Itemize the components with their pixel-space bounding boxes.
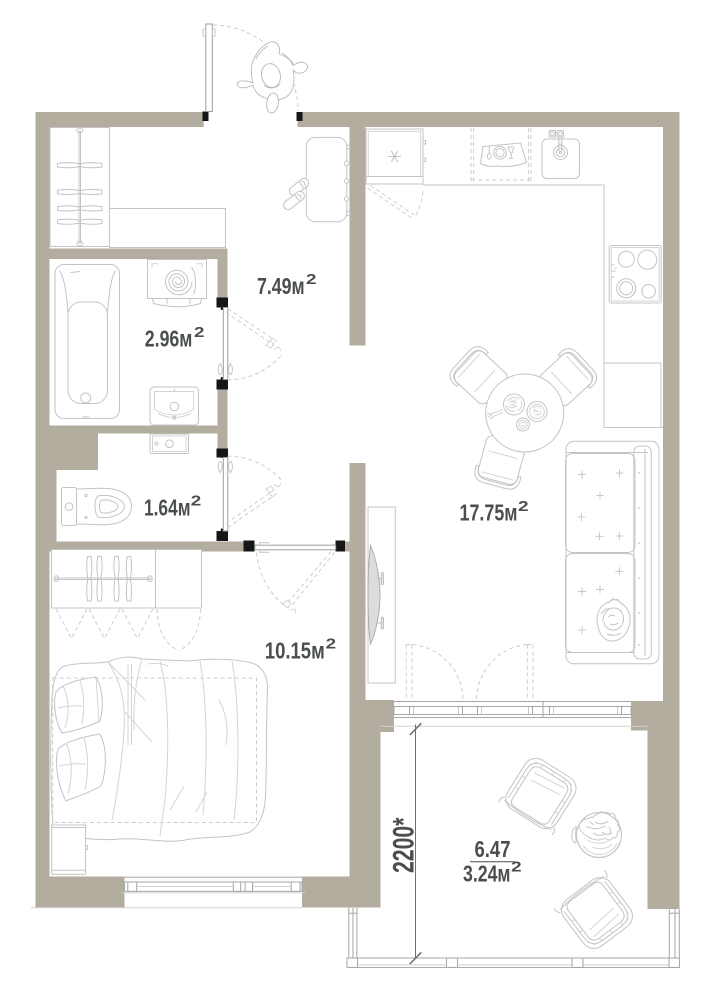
- svg-text:17.75м: 17.75м: [460, 500, 518, 526]
- svg-text:2.96м: 2.96м: [145, 326, 193, 352]
- svg-text:2: 2: [194, 325, 205, 341]
- svg-text:2: 2: [511, 860, 522, 876]
- svg-text:2: 2: [518, 499, 529, 515]
- svg-text:2200*: 2200*: [388, 817, 421, 873]
- svg-text:7.49м: 7.49м: [257, 273, 305, 299]
- svg-text:2: 2: [326, 637, 337, 653]
- svg-text:10.15м: 10.15м: [265, 637, 325, 663]
- svg-text:2: 2: [306, 272, 317, 288]
- svg-text:2: 2: [191, 494, 202, 510]
- svg-text:1.64м: 1.64м: [144, 494, 191, 520]
- svg-text:3.24м: 3.24м: [463, 860, 511, 886]
- svg-text:6.47: 6.47: [475, 836, 511, 862]
